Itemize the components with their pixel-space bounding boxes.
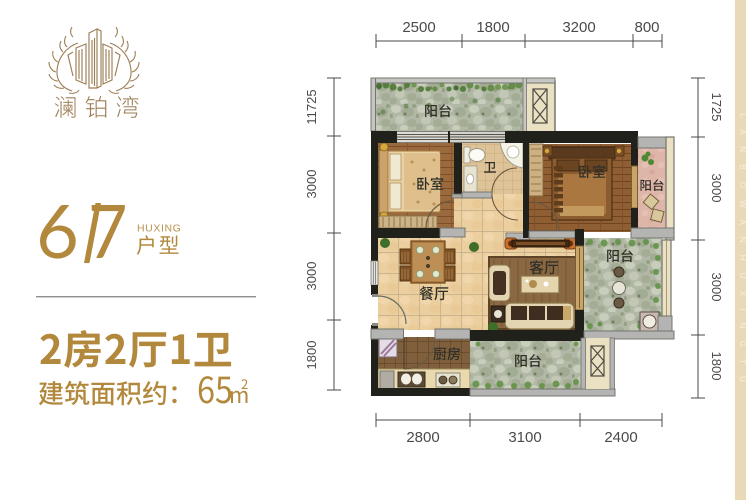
svg-text:3000: 3000 <box>304 262 319 291</box>
svg-text:11725: 11725 <box>304 89 319 124</box>
svg-text:1800: 1800 <box>709 352 724 381</box>
svg-text:3200: 3200 <box>562 19 595 36</box>
svg-text:2500: 2500 <box>402 19 435 36</box>
svg-text:HUXING: HUXING <box>137 223 181 235</box>
svg-text:800: 800 <box>634 19 659 36</box>
svg-text:3000: 3000 <box>709 174 724 203</box>
svg-text:2400: 2400 <box>604 429 637 446</box>
svg-text:L A N B O W A N H U X I N G: L A N B O W A N H U X I N G T U <box>738 113 747 387</box>
svg-text:2800: 2800 <box>406 429 439 446</box>
svg-text:3100: 3100 <box>508 429 541 446</box>
svg-text:3000: 3000 <box>304 170 319 199</box>
svg-text:3000: 3000 <box>709 273 724 302</box>
svg-text:1725: 1725 <box>709 93 724 122</box>
svg-text:1800: 1800 <box>476 19 509 36</box>
svg-text:1800: 1800 <box>304 341 319 370</box>
